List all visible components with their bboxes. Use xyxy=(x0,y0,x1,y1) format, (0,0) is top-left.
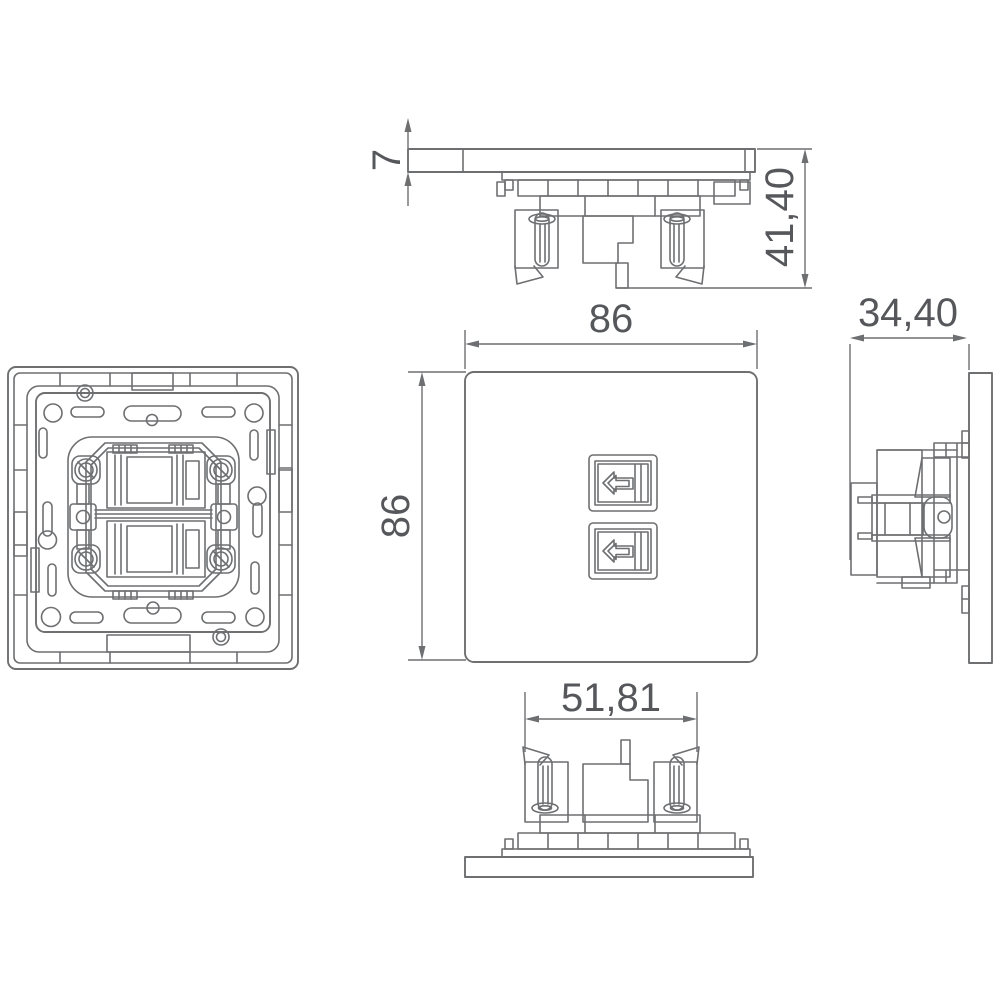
left-arrow-icon xyxy=(603,472,633,494)
socket-port-2 xyxy=(589,523,657,579)
front-plate xyxy=(465,372,757,662)
dimension-front-height: 86 xyxy=(374,372,466,660)
top-view: 7 41,40 xyxy=(365,118,812,288)
side-view: 34,40 xyxy=(850,291,992,663)
dimension-total-depth: 41,40 xyxy=(616,149,812,288)
side-plate xyxy=(969,373,992,663)
claw-left xyxy=(523,747,568,822)
bottom-view: 51,81 xyxy=(465,676,753,877)
side-view-mechanism xyxy=(851,431,969,613)
switch-mechanism-rear xyxy=(68,437,239,599)
switch-dimension-drawing: 7 41,40 xyxy=(0,0,1000,1000)
dim-label-total-depth: 41,40 xyxy=(758,167,802,267)
front-view: 86 86 xyxy=(374,297,757,662)
socket-port-1 xyxy=(589,455,657,511)
dimension-plate-thickness: 7 xyxy=(365,118,412,206)
dim-label-mechanism-width: 51,81 xyxy=(561,676,661,720)
bottom-view-mechanism xyxy=(502,740,750,857)
top-view-plate xyxy=(408,149,755,172)
dim-label-front-height: 86 xyxy=(374,494,418,539)
bottom-plate xyxy=(465,857,753,877)
dimension-mechanism-width: 51,81 xyxy=(525,676,697,752)
claw-left xyxy=(515,210,558,284)
dim-label-side-depth: 34,40 xyxy=(858,291,958,335)
dim-label-plate-thickness: 7 xyxy=(365,149,409,171)
dimension-front-width: 86 xyxy=(465,297,757,369)
rear-view xyxy=(8,367,298,669)
left-arrow-icon xyxy=(603,540,633,562)
technical-drawing-page: 7 41,40 xyxy=(0,0,1000,1000)
claw-right xyxy=(654,747,699,822)
dim-label-front-width: 86 xyxy=(589,297,634,341)
claw-right xyxy=(661,210,704,284)
top-view-mechanism xyxy=(497,172,750,288)
